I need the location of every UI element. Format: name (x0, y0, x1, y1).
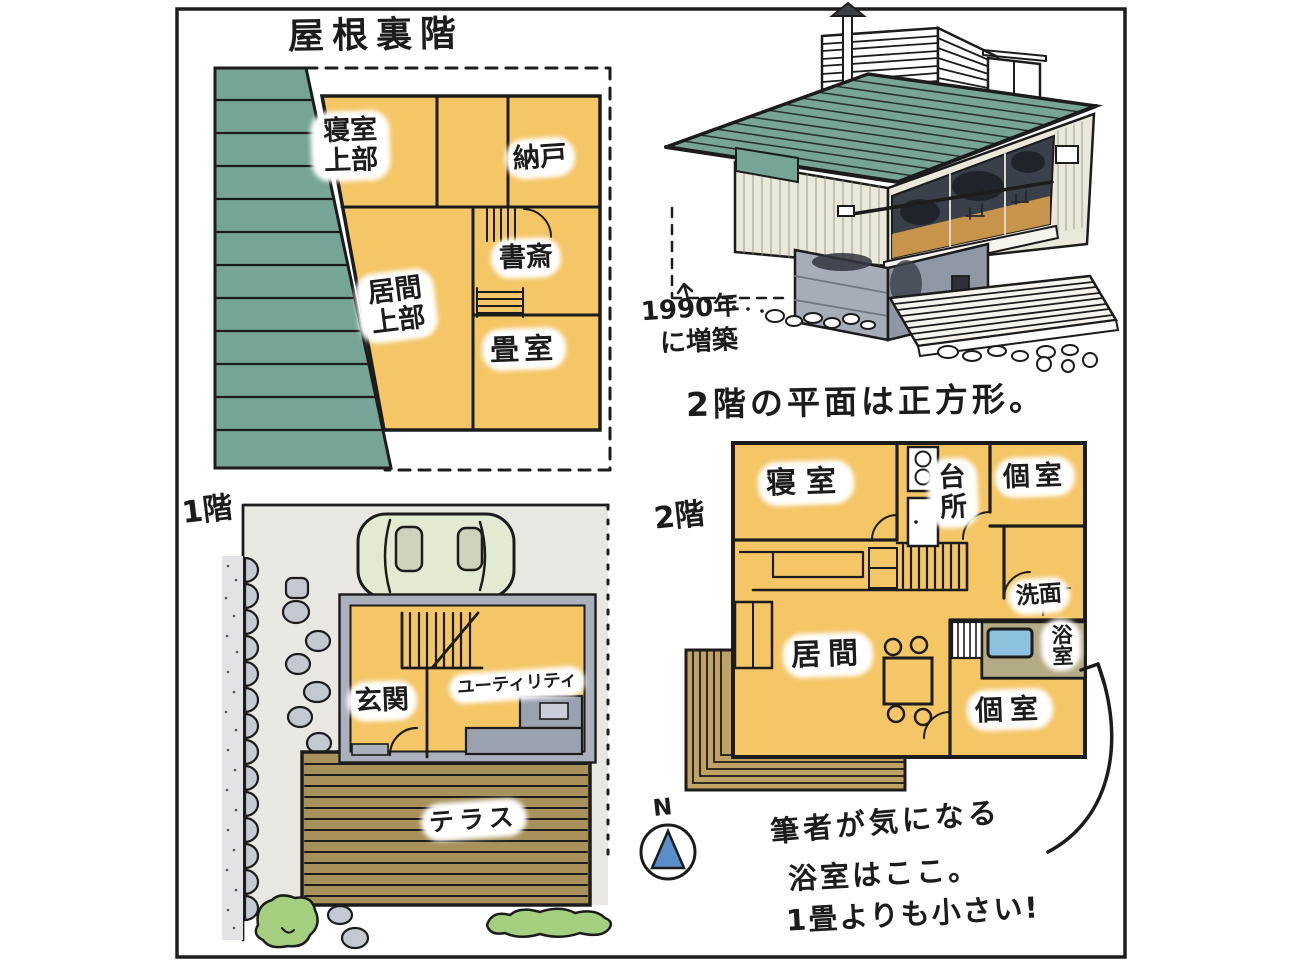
sketch-drawing (0, 0, 1300, 975)
stone-wall (222, 556, 258, 940)
sketch-page: 屋根裏階 寝室上部 納戸 書斎 畳室 居間上部 1990年 に増築 2階の平面は… (0, 0, 1300, 975)
room-label-living: 居間 (787, 637, 868, 673)
attic-title: 屋根裏階 (288, 14, 465, 57)
room-label-bedroom: 寝室 (762, 465, 849, 502)
attic-room-label-tatami: 畳室 (486, 332, 561, 367)
second-floor-headline: 2階の平面は正方形。 (686, 381, 1047, 424)
second-floor-label: 2階 (652, 497, 706, 536)
room-label-bathroom: 浴室 (1045, 623, 1076, 666)
room-label-entrance: 玄関 (351, 685, 412, 717)
attic-room-label-storage: 納戸 (509, 141, 571, 175)
compass-label: N (652, 795, 674, 823)
utility-step (466, 728, 582, 754)
extension-annotation-line2: に増築 (659, 326, 738, 359)
room-label-washroom: 洗面 (1012, 581, 1066, 610)
attic-room-label-study: 書斎 (495, 242, 556, 274)
room-label-private-room-bottom: 個室 (971, 693, 1048, 727)
room-label-kitchen: 台所 (931, 462, 974, 524)
first-floor-plan (222, 505, 611, 948)
attic-room-label-living-above: 居間上部 (359, 272, 435, 340)
car (358, 514, 514, 598)
first-floor-label: 1階 (180, 491, 235, 531)
room-label-private-room-top: 個室 (999, 461, 1070, 494)
bathtub (988, 629, 1032, 657)
north-compass-icon (641, 825, 695, 879)
second-floor-plan (686, 443, 1085, 790)
attic-room-label-bedroom-above: 寝室上部 (315, 115, 387, 178)
bath-closet-hatch (952, 622, 982, 658)
gable-window (1056, 146, 1078, 163)
